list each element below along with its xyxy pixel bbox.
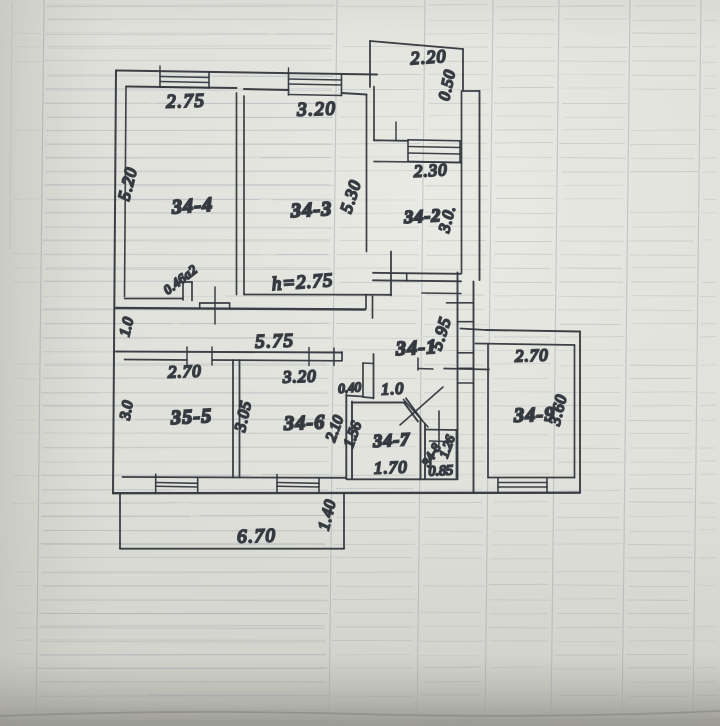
svg-text:34-6: 34-6	[283, 411, 326, 434]
svg-text:3.20: 3.20	[296, 98, 337, 120]
svg-text:6.70: 6.70	[237, 525, 277, 547]
svg-text:2.75: 2.75	[166, 90, 206, 112]
svg-text:1.70: 1.70	[374, 457, 408, 477]
svg-text:2.20: 2.20	[410, 46, 448, 68]
svg-text:0.40: 0.40	[338, 379, 362, 396]
svg-text:5.75: 5.75	[255, 330, 295, 352]
svg-text:2.70: 2.70	[515, 345, 549, 365]
svg-text:3.20: 3.20	[282, 366, 317, 386]
svg-text:34-2: 34-2	[403, 205, 442, 227]
svg-text:34-4: 34-4	[170, 194, 214, 219]
svg-text:h=2.75: h=2.75	[271, 270, 334, 295]
svg-text:2.70: 2.70	[168, 361, 202, 381]
svg-text:0.85: 0.85	[428, 463, 453, 479]
svg-text:2.30: 2.30	[413, 160, 448, 181]
svg-text:34-3: 34-3	[289, 198, 333, 222]
svg-text:35-5: 35-5	[169, 405, 213, 429]
svg-text:1.0: 1.0	[381, 380, 405, 398]
svg-text:34-7: 34-7	[372, 429, 411, 451]
